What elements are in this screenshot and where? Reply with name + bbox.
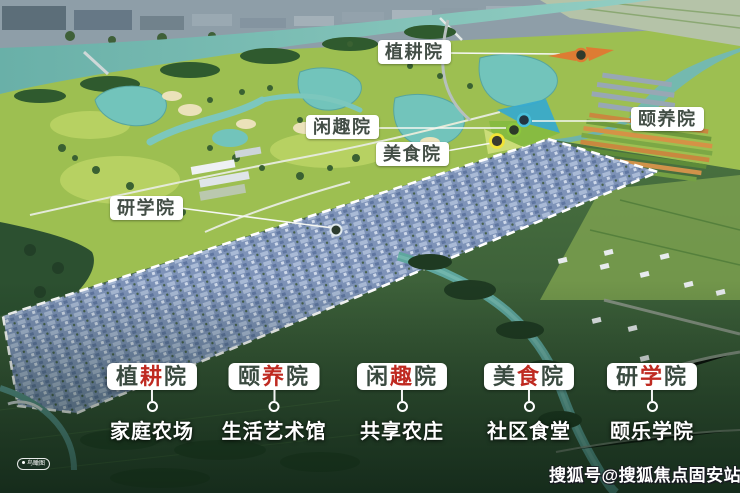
legend-subtitle: 生活艺术馆	[222, 415, 327, 444]
legend-item-planting: 植耕院 家庭农场	[107, 363, 197, 444]
legend-subtitle: 家庭农场	[107, 415, 197, 444]
legend-title-box: 颐养院	[229, 363, 319, 390]
legend-connector-dot	[646, 401, 657, 412]
legend-connector-line	[651, 390, 653, 401]
legend-connector-line	[401, 390, 403, 401]
legend-subtitle: 社区食堂	[484, 415, 574, 444]
legend-char-accent: 学	[640, 364, 664, 389]
map-label-planting: 植耕院	[378, 40, 451, 64]
food-zone-marker	[491, 135, 504, 148]
map-label-study: 研学院	[110, 196, 183, 220]
legend-connector-line	[528, 390, 530, 401]
legend-char-accent: 养	[262, 364, 286, 389]
legend-char: 闲	[366, 364, 390, 389]
legend-title-box: 美食院	[484, 363, 574, 390]
leisure-zone-marker	[508, 124, 520, 136]
aerial-masterplan-image: 植耕院 闲趣院 美食院 颐养院 研学院 植耕院 家庭农场 颐养院 生活艺术馆 闲…	[0, 0, 740, 493]
legend-item-leisure: 闲趣院 共享农庄	[357, 363, 447, 444]
map-label-wellness: 颐养院	[631, 107, 704, 131]
legend-char: 研	[616, 364, 640, 389]
legend-connector-dot	[523, 401, 534, 412]
badge-label: 鸟瞰图	[27, 461, 45, 467]
legend-connector-dot	[146, 401, 157, 412]
legend-char-accent: 趣	[390, 364, 414, 389]
legend-char: 颐	[238, 364, 262, 389]
legend-connector-line	[151, 390, 153, 401]
legend-item-wellness: 颐养院 生活艺术馆	[222, 363, 327, 444]
legend-connector-line	[273, 390, 275, 401]
legend-title-box: 闲趣院	[357, 363, 447, 390]
legend-char: 院	[541, 364, 565, 389]
legend-char: 美	[493, 364, 517, 389]
badge-dot-icon	[22, 461, 25, 464]
birdview-badge: 鸟瞰图	[17, 458, 50, 470]
wellness-zone-marker	[518, 114, 530, 126]
legend-item-study: 研学院 颐乐学院	[607, 363, 697, 444]
legend-char: 院	[164, 364, 188, 389]
map-label-leisure: 闲趣院	[306, 115, 379, 139]
sohu-watermark: 搜狐号@搜狐焦点固安站	[549, 461, 740, 486]
legend-char-accent: 耕	[140, 364, 164, 389]
legend-connector-dot	[396, 401, 407, 412]
legend-connector-dot	[269, 401, 280, 412]
legend-subtitle: 共享农庄	[357, 415, 447, 444]
legend-title-box: 研学院	[607, 363, 697, 390]
legend-subtitle: 颐乐学院	[607, 415, 697, 444]
study-zone-marker	[331, 225, 342, 236]
study-campus-buildings	[189, 147, 267, 202]
legend-char: 院	[664, 364, 688, 389]
legend-title-box: 植耕院	[107, 363, 197, 390]
legend-char: 院	[286, 364, 310, 389]
map-label-food: 美食院	[376, 142, 449, 166]
legend-item-food: 美食院 社区食堂	[484, 363, 574, 444]
legend-char-accent: 食	[517, 364, 541, 389]
legend-char: 院	[414, 364, 438, 389]
legend-char: 植	[116, 364, 140, 389]
